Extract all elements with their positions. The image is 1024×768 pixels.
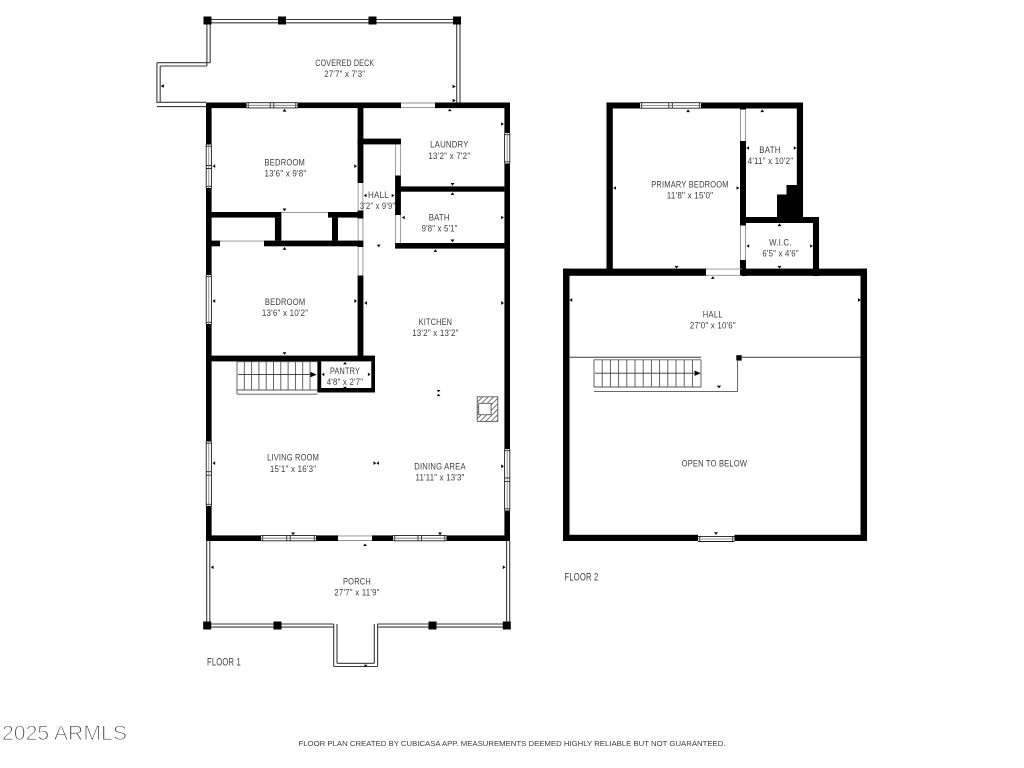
svg-text:9'8" x 5'1": 9'8" x 5'1" (422, 224, 458, 234)
svg-text:27'7" x 7'3": 27'7" x 7'3" (324, 69, 365, 79)
svg-text:11'8" x 15'0": 11'8" x 15'0" (667, 191, 714, 201)
svg-text:BATH: BATH (759, 145, 781, 155)
svg-text:BATH: BATH (429, 212, 450, 222)
svg-text:6'5" x 4'6": 6'5" x 4'6" (762, 249, 799, 259)
svg-text:BEDROOM: BEDROOM (265, 297, 306, 307)
svg-text:LIVING ROOM: LIVING ROOM (267, 453, 319, 463)
svg-text:27'0" x 10'6": 27'0" x 10'6" (690, 321, 736, 331)
svg-text:PORCH: PORCH (343, 576, 371, 586)
svg-text:DINING AREA: DINING AREA (414, 462, 466, 472)
svg-text:FLOOR 1: FLOOR 1 (207, 656, 241, 668)
svg-text:2025 ARMLS: 2025 ARMLS (2, 721, 127, 745)
svg-text:KITCHEN: KITCHEN (419, 317, 453, 327)
svg-text:PRIMARY BEDROOM: PRIMARY BEDROOM (651, 179, 729, 189)
svg-text:4'11" x 10'2": 4'11" x 10'2" (748, 156, 794, 166)
svg-text:W.I.C.: W.I.C. (769, 237, 792, 247)
svg-text:13'6" x 9'8": 13'6" x 9'8" (265, 169, 307, 179)
svg-text:11'11" x 13'3": 11'11" x 13'3" (416, 473, 465, 483)
svg-text:HALL: HALL (368, 190, 389, 200)
svg-text:PANTRY: PANTRY (330, 366, 360, 376)
svg-text:BEDROOM: BEDROOM (265, 157, 306, 167)
svg-text:LAUNDRY: LAUNDRY (430, 140, 469, 150)
svg-text:27'7" x 11'9": 27'7" x 11'9" (334, 588, 380, 598)
svg-text:13'2" x 13'2": 13'2" x 13'2" (412, 328, 459, 338)
svg-text:3'2" x 9'9": 3'2" x 9'9" (360, 201, 396, 211)
svg-text:FLOOR 2: FLOOR 2 (565, 571, 599, 583)
svg-text:13'6" x 10'2": 13'6" x 10'2" (262, 308, 309, 318)
svg-text:OPEN TO BELOW: OPEN TO BELOW (682, 458, 748, 468)
svg-text:15'1" x 16'3": 15'1" x 16'3" (270, 464, 317, 474)
svg-text:FLOOR PLAN CREATED BY CUBICASA: FLOOR PLAN CREATED BY CUBICASA APP. MEAS… (299, 739, 726, 748)
svg-text:COVERED DECK: COVERED DECK (315, 58, 374, 68)
svg-text:HALL: HALL (703, 309, 723, 319)
svg-text:13'2" x 7'2": 13'2" x 7'2" (428, 151, 470, 161)
svg-text:4'8" x 2'7": 4'8" x 2'7" (327, 377, 364, 387)
